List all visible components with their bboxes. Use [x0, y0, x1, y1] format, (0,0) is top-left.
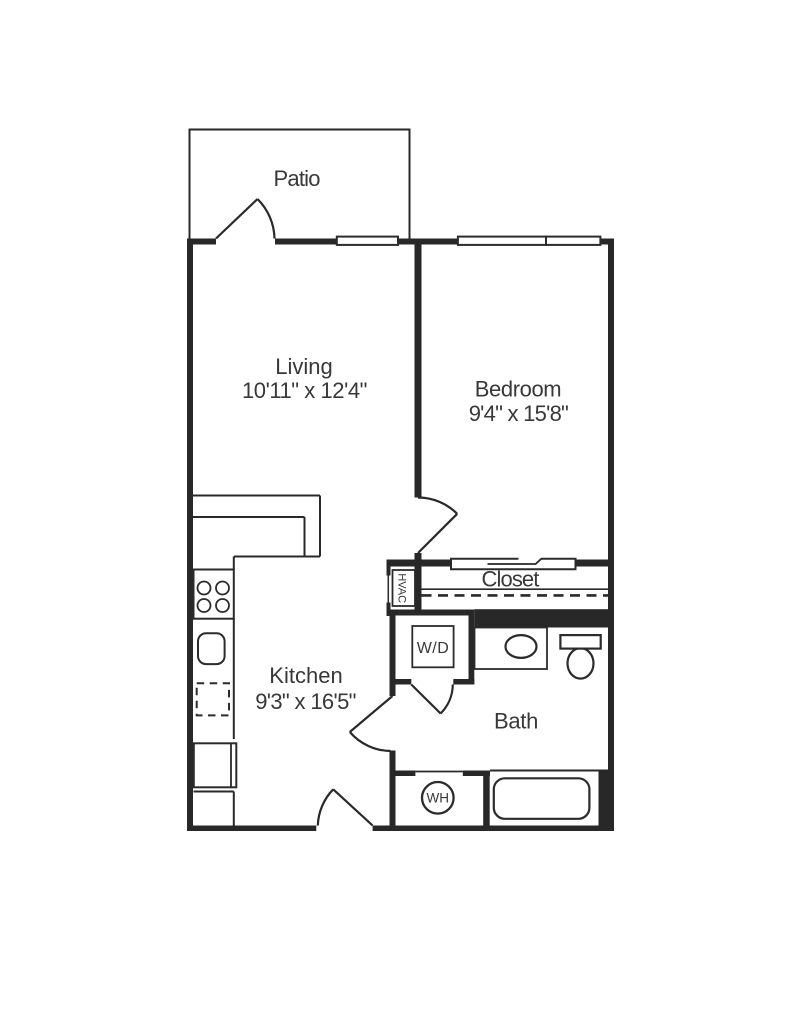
svg-text:Living: Living [275, 354, 332, 379]
svg-text:Closet: Closet [482, 567, 540, 592]
svg-text:9'4" x 15'8": 9'4" x 15'8" [469, 401, 568, 426]
svg-text:Bedroom: Bedroom [475, 377, 561, 402]
svg-text:W/D: W/D [417, 640, 450, 657]
svg-text:HVAC: HVAC [396, 573, 408, 603]
svg-text:Kitchen: Kitchen [269, 663, 342, 688]
svg-text:9'3" x 16'5": 9'3" x 16'5" [255, 689, 356, 714]
svg-text:WH: WH [427, 791, 450, 806]
svg-text:10'11" x 12'4": 10'11" x 12'4" [242, 378, 367, 403]
svg-text:Patio: Patio [274, 166, 321, 191]
svg-text:Bath: Bath [494, 708, 538, 733]
